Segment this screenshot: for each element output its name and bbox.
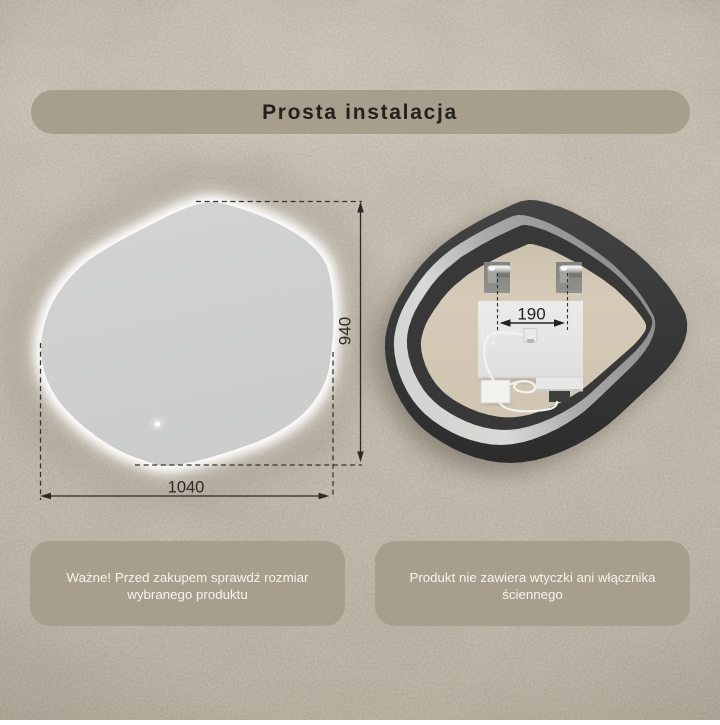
svg-text:ściennego: ściennego bbox=[502, 587, 563, 602]
svg-text:Ważne! Przed zakupem sprawdź r: Ważne! Przed zakupem sprawdź rozmiar bbox=[67, 570, 309, 585]
svg-text:190: 190 bbox=[517, 305, 545, 324]
svg-text:Produkt nie zawiera wtyczki an: Produkt nie zawiera wtyczki ani włącznik… bbox=[409, 570, 656, 585]
svg-text:940: 940 bbox=[336, 317, 355, 345]
svg-text:Prosta instalacja: Prosta instalacja bbox=[262, 101, 458, 124]
svg-text:wybranego produktu: wybranego produktu bbox=[126, 587, 248, 602]
svg-text:1040: 1040 bbox=[168, 479, 205, 497]
